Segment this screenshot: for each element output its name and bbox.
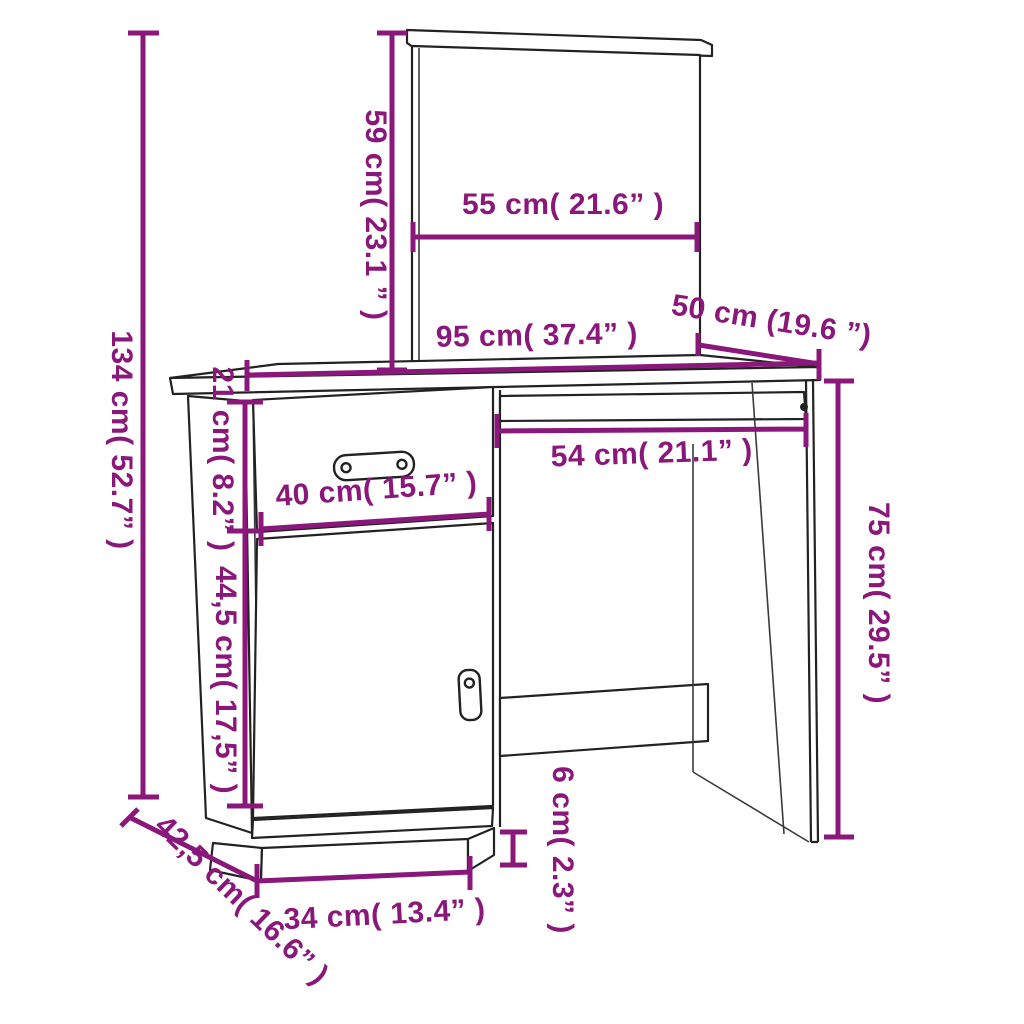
clearance-height-label: 75 cm( 29.5” ) <box>862 502 895 704</box>
door-handle-plate <box>458 669 482 720</box>
dimension-diagram: 134 cm( 52.7” ) 59 cm( 23.1 ” ) 55 cm( 2… <box>0 0 1024 1024</box>
apron-height-label: 21 cm( 8.2” ) <box>206 367 239 552</box>
door-front <box>253 523 493 818</box>
door-handle-screw <box>465 678 474 687</box>
right-panel-inner-edge <box>752 383 784 834</box>
right-side-panel-front-edge <box>806 381 818 842</box>
tray-width-label: 54 cm( 21.1” ) <box>550 433 753 473</box>
base-depth-label: 42,5 cm( 16.6” ) <box>148 809 335 991</box>
mirror-width-label: 55 cm( 21.6” ) <box>462 188 664 221</box>
base-width-label: 34 cm( 13.4” ) <box>283 893 487 937</box>
knee-space-floor-edge <box>693 772 809 842</box>
plinth-height-label: 6 cm( 2.3” ) <box>546 766 579 934</box>
total-height-label: 134 cm( 52.7” ) <box>105 330 138 549</box>
right-tray-front <box>500 392 806 421</box>
back-stretcher-panel <box>500 684 708 756</box>
door-handle <box>458 669 482 720</box>
drawer-handle-screw-right <box>397 460 407 470</box>
clearance-height-dim-line <box>824 381 854 837</box>
plinth-height-dim-line <box>500 832 527 865</box>
desk-width-label: 95 cm( 37.4” ) <box>436 317 639 354</box>
mirror-height-label: 59 cm( 23.1 ” ) <box>359 110 392 321</box>
drawer-handle-screw-left <box>341 463 351 473</box>
diagram-canvas: 134 cm( 52.7” ) 59 cm( 23.1 ” ) 55 cm( 2… <box>0 0 1024 1024</box>
door-height-label: 44,5 cm( 17,5” ) <box>209 566 242 794</box>
